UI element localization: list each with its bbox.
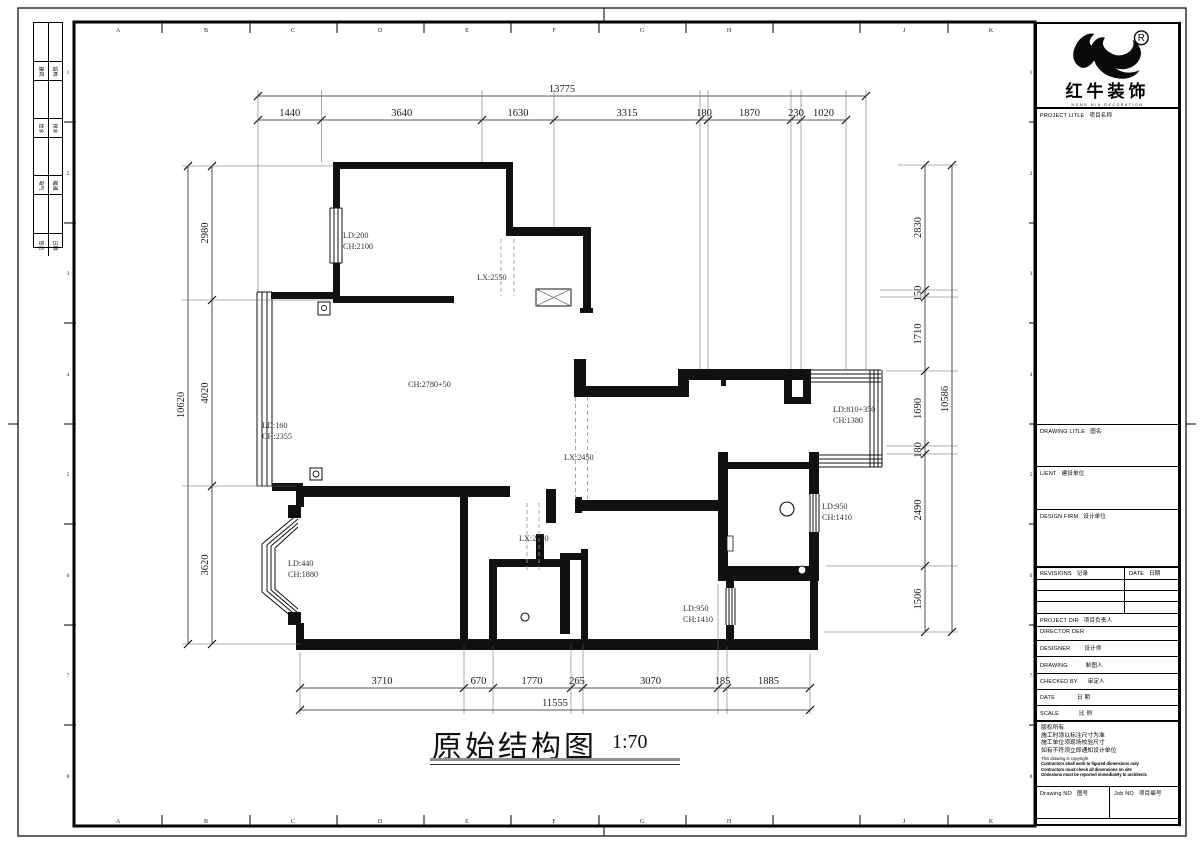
registered-mark: R: [1137, 33, 1144, 44]
zone-number-left: 2: [67, 171, 70, 177]
signature-strip-cell: [34, 138, 49, 175]
zone-letter-bottom: K: [989, 819, 994, 825]
meter-box-mid: [310, 468, 322, 480]
zone-number-left: 1: [67, 70, 70, 76]
signature-strip-cell: [34, 195, 49, 233]
signature-strip-cell: 给水: [34, 119, 49, 137]
title-underline-thick: [430, 758, 680, 761]
zone-letter-top: B: [204, 28, 208, 34]
signature-strip-cell: [34, 81, 49, 118]
room-label: CH:2355: [262, 432, 292, 441]
signature-strip-cell: 电气: [34, 176, 49, 194]
dim-label: 2830: [913, 217, 924, 238]
dim-label: 1440: [279, 108, 300, 119]
zone-number-left: 4: [67, 372, 70, 378]
dim-label: 180: [696, 108, 712, 119]
signature-strip-cell: [49, 138, 63, 175]
zone-number-right: 6: [1030, 573, 1033, 579]
tb-client: LIENT建设单位: [1037, 467, 1178, 510]
signature-strip-label-row: 签名日期: [34, 234, 62, 256]
zone-number-left: 5: [67, 472, 70, 478]
zone-number-left: 3: [67, 271, 70, 277]
room-label: LD:950: [683, 604, 708, 613]
signature-strip-cell: 排水: [49, 119, 63, 137]
dim-label: 1710: [913, 324, 924, 345]
zone-letter-bottom: H: [727, 819, 732, 825]
outer-border: [8, 8, 1196, 836]
signature-strip-label-row: 电气暖通: [34, 176, 62, 195]
dim-label: 185: [715, 676, 731, 687]
window-living-left: [257, 292, 272, 486]
dim-label: 3620: [200, 555, 211, 576]
zone-letter-top: G: [640, 28, 645, 34]
tb-designer: DESIGNER设计师: [1037, 641, 1178, 657]
zone-number-right: 4: [1030, 372, 1033, 378]
zone-letter-bottom: A: [116, 819, 121, 825]
dim-label: 670: [471, 676, 487, 687]
signature-strip-label-row: 建筑结构: [34, 62, 62, 81]
zone-letter-top: E: [465, 28, 469, 34]
dim-label: 11555: [542, 698, 568, 709]
zone-letter-top: J: [903, 28, 906, 34]
tb-checked-by: CHECKED BY审定人: [1037, 674, 1178, 690]
tb-revisions-header: REVISIONS记录 DATE日期: [1037, 568, 1178, 580]
dim-label: 10620: [176, 392, 187, 418]
window-top-room: [330, 208, 342, 263]
signature-strip-blank-row: [34, 138, 62, 176]
room-label: CH:1880: [288, 570, 318, 579]
zone-number-right: 2: [1030, 171, 1033, 177]
zone-number-left: 8: [67, 774, 70, 780]
zone-letter-top: K: [989, 28, 994, 34]
dim-label: 265: [569, 676, 585, 687]
signature-strip-cell: 建筑: [34, 62, 49, 80]
title-underline-thin: [430, 764, 680, 765]
signature-strip-cell: [34, 23, 49, 61]
tb-project-dir: PROJECT DIR项目负责人: [1037, 614, 1178, 627]
room-label: LD:200: [343, 231, 368, 240]
dim-label: 2980: [200, 223, 211, 244]
zone-letter-top: C: [291, 28, 295, 34]
meter-box-top: [318, 302, 330, 315]
zone-letter-bottom: B: [204, 819, 208, 825]
brand-subtitle: HONG NIU DECORATION: [1072, 103, 1144, 107]
logo-area: R 红牛装饰 HONG NIU DECORATION: [1037, 24, 1178, 109]
zone-letter-bottom: C: [291, 819, 295, 825]
signature-strip-label-row: 给水排水: [34, 119, 62, 138]
dim-label: 1690: [913, 398, 924, 419]
dim-label: 1020: [813, 108, 834, 119]
room-label: LX:2550: [477, 273, 507, 282]
floor-plan-canvas: AABBCCDDEEFFGGHHJJKK1122334455667788: [0, 0, 1200, 844]
zone-letter-bottom: D: [378, 819, 383, 825]
tb-drawing-no: Drawing NO图号 Job NO项目编号: [1037, 787, 1178, 819]
signature-strip-cell: 日期: [49, 234, 63, 256]
tb-director: DIRECTOR DER: [1037, 627, 1178, 641]
zone-letter-bottom: F: [552, 819, 556, 825]
signature-strip-blank-row: [34, 81, 62, 119]
dim-label: 3710: [372, 676, 393, 687]
zone-number-left: 7: [67, 673, 70, 679]
signature-strip-cell: 签名: [34, 234, 49, 256]
dim-label: 1870: [739, 108, 760, 119]
tb-project-title: PROJECT LITLE项目名称: [1037, 109, 1178, 425]
dim-label: 1770: [522, 676, 543, 687]
signature-strip-cell: [49, 195, 63, 233]
signature-strip-blank-row: [34, 23, 62, 62]
room-label: LD:160: [262, 421, 287, 430]
dim-label: 3070: [640, 676, 661, 687]
room-label: CH:1410: [683, 615, 713, 624]
signature-strip: 建筑结构给水排水电气暖通签名日期: [33, 22, 63, 248]
tb-scale: SCALE比 例: [1037, 706, 1178, 722]
dim-label: 230: [788, 108, 804, 119]
dim-label: 3640: [391, 108, 412, 119]
tb-drawing-by: DRAWING制图人: [1037, 657, 1178, 674]
bath-wall-niche: [727, 536, 733, 551]
zone-letter-top: F: [552, 28, 556, 34]
tb-revision-row: [1037, 591, 1178, 602]
tb-revision-row: [1037, 580, 1178, 591]
rednull-bull-logo-icon: R: [1058, 28, 1158, 79]
zone-letter-top: H: [727, 28, 732, 34]
room-label: CH:1380: [833, 416, 863, 425]
room-label: LX:2550: [519, 534, 549, 543]
drawing-scale: 1:70: [612, 731, 648, 754]
bath-drain-small: [798, 566, 806, 574]
zone-number-left: 6: [67, 573, 70, 579]
dim-label: 2490: [913, 500, 924, 521]
zone-letter-bottom: G: [640, 819, 645, 825]
zone-letter-top: D: [378, 28, 383, 34]
signature-strip-cell: 暖通: [49, 176, 63, 194]
wall-window-gaps: [726, 494, 819, 625]
room-label: CH:2780+50: [408, 380, 451, 389]
room-label: CH:1410: [822, 513, 852, 522]
room-label: LD:810+350: [833, 405, 875, 414]
dim-label: 1885: [758, 676, 779, 687]
tb-footer-space: [1037, 819, 1178, 828]
room-label: CH:2100: [343, 242, 373, 251]
signature-strip-cell: [49, 81, 63, 118]
signature-strip-cell: [49, 23, 63, 61]
dim-label: 10586: [940, 386, 951, 412]
dim-label: 13775: [549, 84, 575, 95]
window-bay: [262, 514, 298, 622]
zone-letter-top: A: [116, 28, 121, 34]
tb-drawing-title: DRAWING LITLE图名: [1037, 425, 1178, 467]
dim-label: 4020: [200, 383, 211, 404]
tb-notes: 版权所有 施工时须以标注尺寸为准 施工单位须现场校验尺寸 如有不符须立即通知设计…: [1037, 722, 1178, 787]
tb-revision-row: [1037, 602, 1178, 614]
signature-strip-cell: 结构: [49, 62, 63, 80]
dim-label: 150: [913, 286, 924, 302]
tb-date: DATE日 期: [1037, 690, 1178, 706]
room-label: LX:2450: [564, 453, 594, 462]
room-label: LD:440: [288, 559, 313, 568]
dim-label: 180: [913, 442, 924, 458]
zone-number-right: 8: [1030, 774, 1033, 780]
room-label: LD:950: [822, 502, 847, 511]
room-drain: [521, 613, 529, 621]
signature-strip-blank-row: [34, 195, 62, 234]
dim-label: 1630: [508, 108, 529, 119]
zone-number-right: 3: [1030, 271, 1033, 277]
zone-letter-bottom: J: [903, 819, 906, 825]
zone-number-right: 1: [1030, 70, 1033, 76]
tb-design-firm: DESIGN FIRM设计单位: [1037, 510, 1178, 568]
dim-label: 3315: [617, 108, 638, 119]
zone-number-right: 7: [1030, 673, 1033, 679]
brand-name: 红牛装饰: [1066, 77, 1150, 102]
zone-letter-bottom: E: [465, 819, 469, 825]
bath-drain-large: [780, 502, 794, 516]
dim-label: 1506: [913, 589, 924, 610]
title-block: R 红牛装饰 HONG NIU DECORATION PROJECT LITLE…: [1035, 22, 1181, 826]
zone-number-right: 5: [1030, 472, 1033, 478]
